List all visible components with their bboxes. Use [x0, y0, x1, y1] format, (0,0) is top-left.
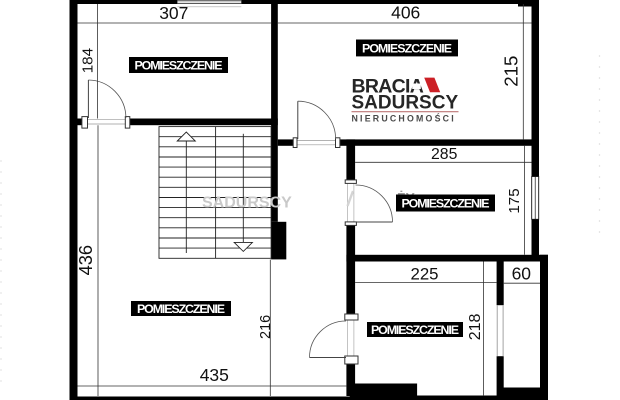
svg-text:184: 184 — [80, 48, 97, 73]
svg-text:406: 406 — [391, 3, 420, 23]
svg-text:POMIESZCZENIE: POMIESZCZENIE — [402, 196, 490, 210]
svg-text:SADURSCY: SADURSCY — [352, 92, 459, 113]
svg-text:307: 307 — [159, 3, 188, 23]
svg-text:POMIESZCZENIE: POMIESZCZENIE — [371, 323, 459, 337]
svg-text:POMIESZCZENIE: POMIESZCZENIE — [362, 41, 452, 55]
svg-text:216: 216 — [258, 315, 274, 339]
svg-text:215: 215 — [501, 56, 522, 87]
svg-text:POMIESZCZENIE: POMIESZCZENIE — [137, 302, 225, 316]
svg-text:SADURSCY: SADURSCY — [202, 195, 292, 212]
svg-text:60: 60 — [512, 263, 532, 283]
svg-text:285: 285 — [431, 146, 458, 163]
svg-text:435: 435 — [200, 365, 229, 385]
svg-text:POMIESZCZENIE: POMIESZCZENIE — [135, 58, 223, 72]
svg-text:NIERUCHOMOŚCI: NIERUCHOMOŚCI — [352, 113, 456, 124]
svg-text:175: 175 — [506, 188, 523, 213]
svg-text:225: 225 — [411, 264, 439, 283]
svg-text:218: 218 — [467, 313, 484, 340]
svg-text:436: 436 — [76, 245, 96, 275]
